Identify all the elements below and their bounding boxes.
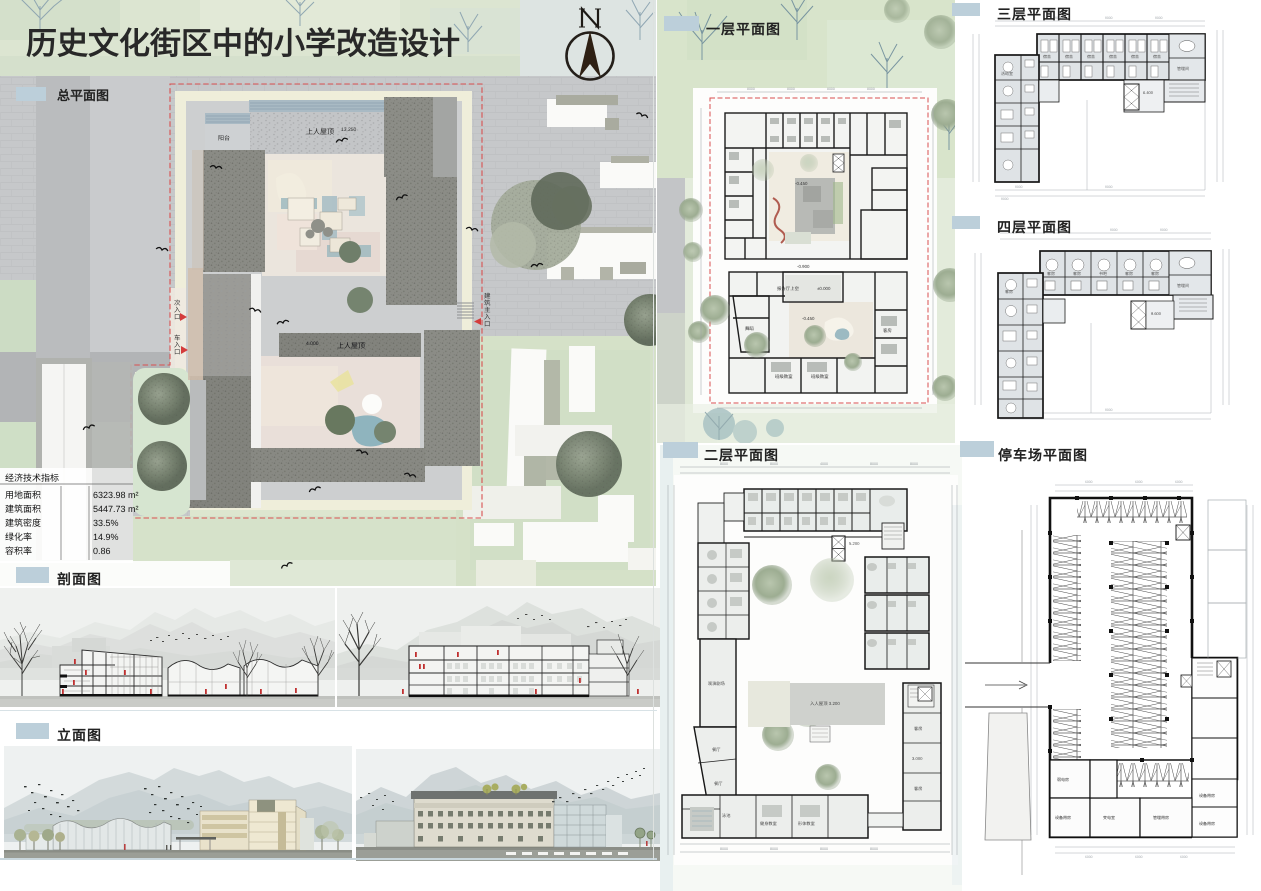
- svg-text:8000: 8000: [870, 462, 878, 466]
- svg-text:客房: 客房: [1151, 271, 1159, 276]
- svg-text:8000: 8000: [1015, 185, 1023, 189]
- svg-text:8000: 8000: [770, 847, 778, 851]
- svg-text:变电室: 变电室: [1103, 815, 1115, 820]
- svg-text:管理用房: 管理用房: [1153, 815, 1169, 820]
- svg-text:宿舍: 宿舍: [1087, 54, 1095, 59]
- svg-text:4000: 4000: [820, 462, 828, 466]
- svg-text:6323.98 m²: 6323.98 m²: [93, 490, 139, 500]
- svg-text:8000: 8000: [1160, 228, 1168, 232]
- svg-text:±0.000: ±0.000: [817, 286, 831, 291]
- svg-text:8000: 8000: [1001, 197, 1009, 201]
- svg-text:入人屋顶 3.200: 入人屋顶 3.200: [810, 701, 840, 706]
- svg-text:4.000: 4.000: [306, 341, 319, 347]
- svg-text:宿舍: 宿舍: [1065, 54, 1073, 59]
- svg-text:8000: 8000: [910, 462, 918, 466]
- svg-text:用地面积: 用地面积: [5, 490, 41, 500]
- svg-text:宿舍: 宿舍: [1153, 54, 1161, 59]
- svg-text:班级教室: 班级教室: [811, 374, 829, 379]
- svg-text:6000: 6000: [1135, 480, 1143, 484]
- svg-text:8000: 8000: [1155, 16, 1163, 20]
- svg-text:建筑密度: 建筑密度: [5, 518, 41, 528]
- svg-text:8000: 8000: [1110, 228, 1118, 232]
- svg-text:33.5%: 33.5%: [93, 518, 119, 528]
- svg-text:0.86: 0.86: [93, 546, 111, 556]
- svg-text:9.600: 9.600: [1151, 311, 1162, 316]
- svg-text:健身教室: 健身教室: [760, 821, 777, 826]
- svg-text:建筑主入口: 建筑主入口: [484, 292, 491, 328]
- svg-text:6000: 6000: [1135, 855, 1143, 859]
- svg-text:8000: 8000: [1105, 408, 1113, 412]
- svg-text:餐厅: 餐厅: [714, 781, 722, 786]
- svg-text:经济技术指标: 经济技术指标: [5, 473, 59, 483]
- svg-text:书吧: 书吧: [1099, 271, 1107, 276]
- svg-text:班级教室: 班级教室: [775, 374, 793, 379]
- svg-text:宿舍: 宿舍: [1043, 54, 1051, 59]
- svg-text:次入口: 次入口: [174, 299, 181, 321]
- svg-text:-0.900: -0.900: [797, 264, 810, 269]
- svg-text:历史文化街区中的小学改造设计: 历史文化街区中的小学改造设计: [26, 26, 460, 61]
- svg-text:管理间: 管理间: [1177, 283, 1189, 288]
- svg-text:弱电房: 弱电房: [1057, 777, 1069, 782]
- svg-text:客房: 客房: [914, 786, 922, 791]
- svg-text:设备用房: 设备用房: [1199, 821, 1215, 826]
- svg-text:6000: 6000: [1180, 855, 1188, 859]
- svg-text:报告厅上空: 报告厅上空: [777, 286, 800, 291]
- svg-text:8000: 8000: [867, 87, 875, 91]
- svg-text:活动室: 活动室: [1001, 71, 1013, 76]
- svg-text:8000: 8000: [1105, 185, 1113, 189]
- svg-text:阳台: 阳台: [218, 134, 230, 142]
- svg-text:6.400: 6.400: [1143, 90, 1154, 95]
- svg-text:8000: 8000: [747, 87, 755, 91]
- svg-text:宿舍: 宿舍: [1109, 54, 1117, 59]
- svg-text:-0.450: -0.450: [795, 181, 808, 186]
- svg-text:13.250: 13.250: [341, 127, 357, 133]
- svg-text:泳池: 泳池: [722, 813, 731, 818]
- svg-text:车入口: 车入口: [174, 334, 181, 356]
- svg-text:3.000: 3.000: [912, 756, 923, 761]
- svg-text:5447.73 m²: 5447.73 m²: [93, 504, 139, 514]
- svg-text:容积率: 容积率: [5, 546, 32, 556]
- svg-text:6000: 6000: [1085, 855, 1093, 859]
- svg-text:绿化率: 绿化率: [5, 532, 32, 542]
- svg-text:8000: 8000: [820, 847, 828, 851]
- svg-text:8000: 8000: [787, 87, 795, 91]
- svg-text:客房: 客房: [1125, 271, 1133, 276]
- svg-text:形体教室: 形体教室: [798, 821, 815, 826]
- svg-text:8000: 8000: [870, 847, 878, 851]
- svg-text:6000: 6000: [1085, 480, 1093, 484]
- svg-text:上人屋顶: 上人屋顶: [306, 128, 334, 136]
- svg-text:观演剧场: 观演剧场: [708, 681, 725, 686]
- svg-text:舞蹈: 舞蹈: [745, 326, 754, 331]
- svg-text:客房: 客房: [1047, 271, 1055, 276]
- svg-text:客房: 客房: [1073, 271, 1081, 276]
- svg-text:8000: 8000: [827, 87, 835, 91]
- svg-text:建筑面积: 建筑面积: [5, 504, 41, 514]
- svg-text:客房: 客房: [1005, 289, 1013, 294]
- svg-text:14.9%: 14.9%: [93, 532, 119, 542]
- svg-text:客房: 客房: [914, 726, 922, 731]
- svg-text:餐厅: 餐厅: [712, 747, 720, 752]
- svg-text:8000: 8000: [1105, 16, 1113, 20]
- svg-text:管理间: 管理间: [1177, 66, 1189, 71]
- svg-text:6000: 6000: [1175, 480, 1183, 484]
- svg-text:客房: 客房: [883, 328, 892, 333]
- svg-text:8000: 8000: [720, 847, 728, 851]
- svg-text:上人屋顶: 上人屋顶: [337, 342, 365, 350]
- svg-text:5.200: 5.200: [849, 541, 860, 546]
- svg-text:总平面图: 总平面图: [57, 88, 109, 103]
- svg-text:宿舍: 宿舍: [1131, 54, 1139, 59]
- svg-text:-0.450: -0.450: [802, 316, 815, 321]
- svg-text:设备用房: 设备用房: [1055, 815, 1071, 820]
- svg-text:设备用房: 设备用房: [1199, 793, 1215, 798]
